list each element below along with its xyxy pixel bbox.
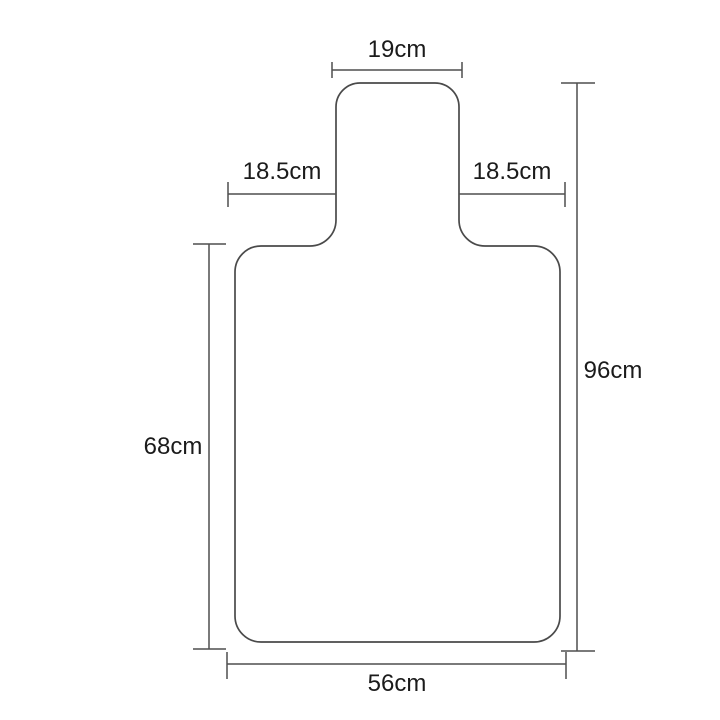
overall-height-label: 96cm	[584, 359, 643, 383]
left-shoulder-label: 18.5cm	[243, 160, 322, 184]
dim-line-right-shoulder	[459, 182, 565, 207]
dim-line-neck-width	[332, 62, 462, 78]
diagram-canvas: 19cm 18.5cm 18.5cm 96cm 68cm 56cm	[0, 0, 720, 720]
right-shoulder-label: 18.5cm	[473, 160, 552, 184]
neck-width-label: 19cm	[368, 38, 427, 62]
bottom-width-label: 56cm	[368, 672, 427, 696]
dim-line-left-shoulder	[228, 182, 336, 207]
body-height-label: 68cm	[144, 435, 203, 459]
